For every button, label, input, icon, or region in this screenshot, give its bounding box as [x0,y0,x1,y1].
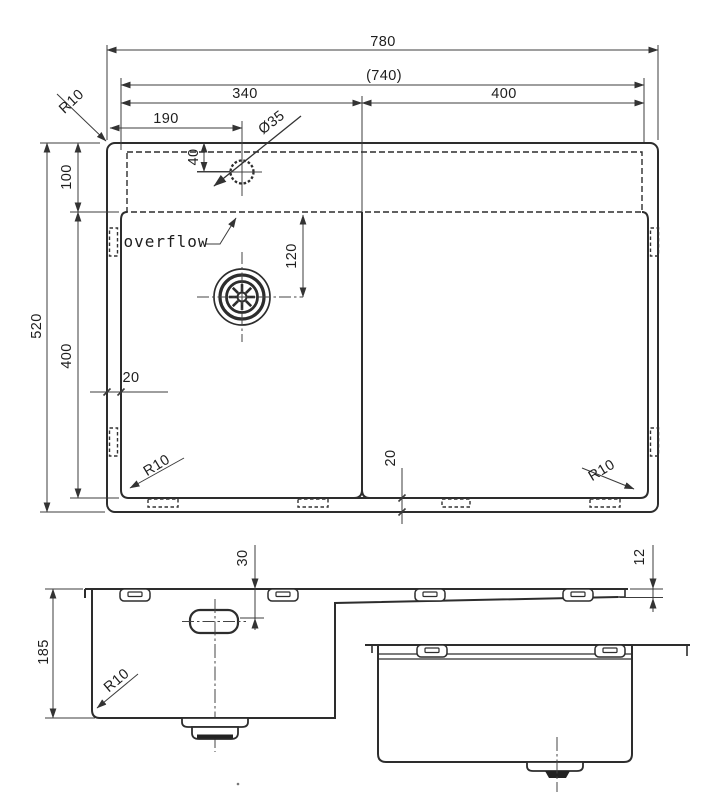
dim-drainboard-thickness: 12 [633,549,648,566]
dim-bowl-depth-top: 400 [60,343,75,368]
dim-left-bowl-width: 340 [232,87,257,102]
front-view-dimensions [45,545,663,718]
right-bowl-clips [417,645,625,657]
dim-bowl-height: 185 [37,639,52,664]
drain-front-view [182,718,248,739]
dim-overflow-drop: 30 [236,550,251,567]
drain-right-bowl [527,737,583,792]
dim-bottom-gap: 20 [384,450,399,467]
overflow-label: overflow [123,234,208,250]
top-view-dimensions [40,45,658,524]
dim-faucet-offset-x: 190 [153,112,178,127]
dim-rim-opening-width: (740) [366,69,402,84]
right-bowl-view-outline [365,645,690,762]
dim-ledge-depth: 100 [60,164,75,189]
dim-side-gap: 20 [123,371,140,386]
dim-faucet-offset-y: 40 [187,149,202,166]
dim-drain-offset: 120 [285,243,300,268]
dim-right-bowl-width: 400 [491,87,516,102]
sink-technical-drawing: 780 (740) 340 400 190 Ø35 40 R10 100 520… [0,0,706,800]
dim-overall-width: 780 [370,35,395,50]
dim-overall-depth: 520 [30,313,45,338]
speck [237,783,240,786]
